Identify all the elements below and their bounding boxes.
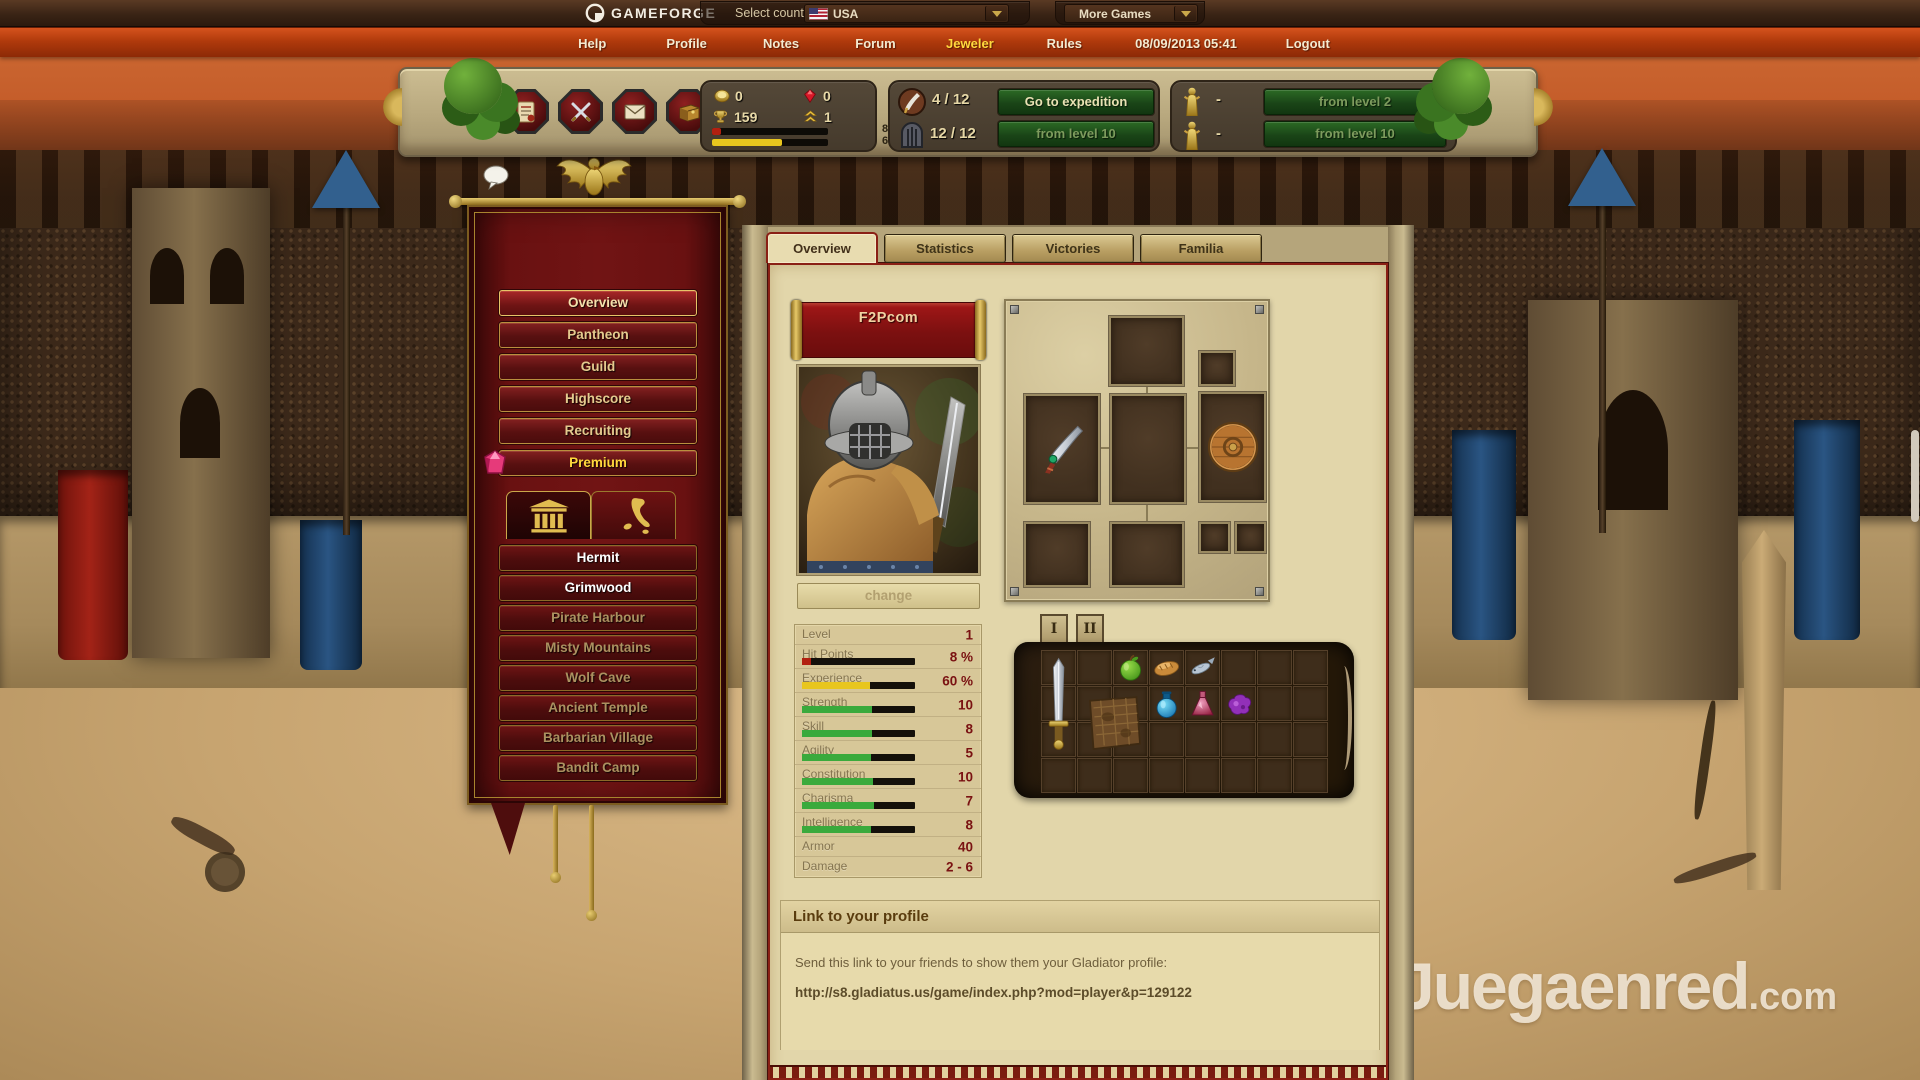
datetime-display: 08/09/2013 05:41 — [1112, 36, 1261, 51]
stat-row-intelligence: Intelligence8 — [795, 813, 981, 837]
nav-help[interactable]: Help — [545, 36, 639, 51]
expedition-points: 4 / 12 — [932, 91, 970, 108]
stat-bar — [802, 754, 915, 761]
nav-logout[interactable]: Logout — [1261, 36, 1355, 51]
country-select[interactable]: USA — [804, 4, 1009, 23]
gold-counter: 0 — [714, 88, 743, 104]
gold-icon — [714, 88, 730, 104]
inventory-cell[interactable] — [1149, 722, 1184, 757]
gladiator-portrait — [797, 365, 980, 575]
location-hermit[interactable]: Hermit — [499, 545, 697, 571]
city-tab[interactable] — [506, 491, 591, 539]
profile-panel: F2Pcom — [768, 263, 1388, 1080]
expedition-dagger-icon — [897, 87, 927, 117]
location-barbarian-village[interactable]: Barbarian Village — [499, 725, 697, 751]
stat-value: 5 — [965, 745, 973, 760]
stat-value: 1 — [965, 627, 973, 642]
inventory-cell[interactable] — [1221, 722, 1256, 757]
scrollbar-thumb[interactable] — [1911, 430, 1919, 522]
premium-gem-icon — [478, 447, 512, 479]
stat-value: 8 — [965, 817, 973, 832]
character-nameplate: F2Pcom — [797, 302, 980, 358]
meander-border — [770, 1065, 1386, 1078]
ruby-counter: 0 — [802, 88, 831, 104]
stat-bar — [802, 826, 915, 833]
resource-header: 0 0 159 1 8% 60% 4 / 12 Go to expedition… — [398, 67, 1538, 157]
inventory-cell[interactable] — [1257, 758, 1292, 793]
blue-drape — [300, 520, 362, 670]
gameforge-topbar: GAMEFORGE Select country: USA More Games — [0, 0, 1920, 27]
inventory-item-blue-potion[interactable] — [1150, 687, 1184, 721]
ruby-icon — [802, 88, 818, 104]
resources-panel: 0 0 159 1 — [700, 80, 877, 152]
amulet-slot[interactable] — [1199, 351, 1235, 386]
banner-pole — [1599, 203, 1606, 533]
combat-button[interactable] — [558, 89, 603, 134]
profile-tabs: OverviewStatisticsVictoriesFamilia — [766, 232, 1268, 263]
dungeon-gate-icon — [897, 120, 927, 150]
inventory-cell[interactable] — [1077, 650, 1112, 685]
stats-table: Level1Hit Points8 %Experience60 %Strengt… — [794, 624, 982, 878]
sidebar-item-pantheon[interactable]: Pantheon — [499, 322, 697, 348]
gloves-slot[interactable] — [1024, 522, 1090, 587]
inventory-tab-1[interactable]: I — [1040, 614, 1068, 644]
wing-ornament-icon — [1534, 85, 1556, 129]
nav-notes[interactable]: Notes — [734, 36, 828, 51]
main-navbar: HelpProfileNotesForumJewelerRules08/09/2… — [0, 27, 1920, 57]
equipment-panel — [1004, 299, 1270, 602]
sidebar-item-recruiting[interactable]: Recruiting — [499, 418, 697, 444]
inventory-item-apple[interactable] — [1114, 651, 1148, 685]
profile-link-header: Link to your profile — [781, 901, 1379, 933]
bag-rope — [1336, 666, 1352, 770]
trophy-icon — [712, 108, 729, 125]
action-icons-row — [504, 89, 711, 134]
wing-ornament-icon — [380, 85, 402, 129]
hitpoints-bar — [712, 128, 828, 135]
sidebar-item-highscore[interactable]: Highscore — [499, 386, 697, 412]
ring-slot-1[interactable] — [1199, 522, 1230, 553]
location-ancient-temple[interactable]: Ancient Temple — [499, 695, 697, 721]
weapon-slot[interactable] — [1024, 394, 1100, 504]
profile-link-url[interactable]: http://s8.gladiatus.us/game/index.php?mo… — [795, 985, 1192, 1000]
chest-slot[interactable] — [1110, 394, 1186, 504]
stat-row-skill: Skill8 — [795, 717, 981, 741]
location-misty-mountains[interactable]: Misty Mountains — [499, 635, 697, 661]
more-games-select[interactable]: More Games — [1064, 4, 1198, 23]
inventory-grid — [1041, 650, 1331, 796]
inventory-cell[interactable] — [1077, 758, 1112, 793]
helmet-slot[interactable] — [1109, 316, 1184, 386]
arena-statue-icon — [1180, 120, 1204, 150]
gameforge-logo[interactable]: GAMEFORGE — [585, 3, 716, 23]
arena-statue-icon — [1180, 86, 1204, 116]
dungeon-points: 12 / 12 — [930, 125, 976, 142]
stat-label: Damage — [802, 859, 847, 873]
profile-link-body: Send this link to your friends to show t… — [781, 933, 1379, 1050]
dungeon-from-level-button[interactable]: from level 10 — [998, 121, 1154, 147]
ring-slot-2[interactable] — [1235, 522, 1266, 553]
go-to-expedition-button[interactable]: Go to expedition — [998, 89, 1154, 115]
obelisk — [1742, 530, 1786, 890]
left-tower — [132, 188, 270, 658]
stat-row-armor: Armor40 — [795, 837, 981, 857]
tab-victories[interactable]: Victories — [1012, 234, 1134, 263]
sidebar-item-premium[interactable]: Premium — [499, 450, 697, 476]
sidebar-menu: OverviewPantheonGuildHighscoreRecruiting… — [499, 290, 697, 482]
tab-familia[interactable]: Familia — [1140, 234, 1262, 263]
ruby-value: 0 — [823, 88, 831, 104]
stat-row-damage: Damage2 - 6 — [795, 857, 981, 877]
banner-rod — [455, 198, 740, 205]
stat-row-experience: Experience60 % — [795, 669, 981, 693]
nav-row: HelpProfileNotesForumJewelerRules08/09/2… — [545, 28, 1355, 58]
inventory-cell[interactable] — [1257, 686, 1292, 721]
change-portrait-button[interactable]: change — [797, 583, 980, 609]
inventory-tab-2[interactable]: II — [1076, 614, 1104, 644]
stat-value: 8 % — [950, 649, 973, 664]
more-games-dropdown-arrow-icon[interactable] — [1174, 6, 1196, 21]
stat-value: 10 — [958, 769, 973, 784]
stat-bar — [802, 802, 915, 809]
inventory-cell[interactable] — [1113, 758, 1148, 793]
expedition-panel: 4 / 12 Go to expedition 12 / 12 from lev… — [888, 80, 1160, 152]
location-pirate-harbour[interactable]: Pirate Harbour — [499, 605, 697, 631]
profile-link-section: Link to your profile Send this link to y… — [780, 900, 1380, 1050]
curved-dagger-icon[interactable] — [1035, 422, 1089, 476]
usa-flag-icon — [809, 8, 828, 20]
tower-cone-roof — [312, 150, 380, 208]
blue-drape — [1452, 430, 1516, 640]
temple-icon — [527, 497, 571, 535]
right-tower — [1528, 300, 1738, 700]
location-grimwood[interactable]: Grimwood — [499, 575, 697, 601]
arena-slot2-value: - — [1216, 125, 1221, 142]
nav-forum[interactable]: Forum — [828, 36, 922, 51]
location-bandit-camp[interactable]: Bandit Camp — [499, 755, 697, 781]
inventory-item-chain-armor[interactable] — [1078, 687, 1148, 757]
inventory-cell[interactable] — [1221, 758, 1256, 793]
trophy-counter: 159 — [712, 108, 757, 125]
messages-icon — [622, 99, 648, 125]
inventory-cell[interactable] — [1185, 722, 1220, 757]
stat-bar — [802, 730, 915, 737]
inventory-cell[interactable] — [1041, 758, 1076, 793]
inventory-item-red-potion[interactable] — [1186, 687, 1220, 721]
sidebar-item-guild[interactable]: Guild — [499, 354, 697, 380]
arena-from-level-10-button[interactable]: from level 10 — [1264, 121, 1446, 147]
location-tabs — [506, 491, 676, 539]
map-tab[interactable] — [591, 491, 676, 539]
tower-cone-roof — [1568, 148, 1636, 206]
blue-drape — [1794, 420, 1860, 640]
hitpoints-bar-fill — [712, 128, 721, 135]
nav-profile[interactable]: Profile — [639, 36, 733, 51]
profile-link-description: Send this link to your friends to show t… — [795, 955, 1167, 970]
report-icon — [514, 99, 540, 125]
inventory-cell[interactable] — [1293, 686, 1328, 721]
country-module: Select country: USA — [700, 1, 1030, 25]
stat-value: 7 — [965, 793, 973, 808]
gameforge-logo-icon — [585, 3, 605, 23]
gold-value: 0 — [735, 88, 743, 104]
more-games-module: More Games — [1055, 1, 1205, 25]
stat-bar — [802, 706, 915, 713]
shield-slot[interactable] — [1199, 392, 1266, 502]
arena-panel: - from level 2 - from level 10 — [1170, 80, 1457, 152]
inventory-bag — [1014, 642, 1354, 798]
stat-value: 2 - 6 — [946, 860, 973, 875]
inventory-item-purple-item[interactable] — [1222, 687, 1256, 721]
stat-value: 8 — [965, 721, 973, 736]
banner-pole — [343, 205, 350, 535]
fallen-shield — [205, 852, 245, 892]
rank-value: 1 — [824, 109, 832, 125]
rank-chevrons-icon — [802, 108, 819, 125]
experience-bar-fill — [712, 139, 782, 146]
location-wolf-cave[interactable]: Wolf Cave — [499, 665, 697, 691]
character-name: F2Pcom — [798, 310, 979, 326]
tab-statistics[interactable]: Statistics — [884, 234, 1006, 263]
ivy-plant — [444, 58, 502, 114]
experience-bar — [712, 139, 828, 146]
ivy-plant — [1432, 58, 1490, 114]
stat-row-constitution: Constitution10 — [795, 765, 981, 789]
stat-label: Level — [802, 627, 831, 641]
map-icon — [613, 495, 655, 537]
stat-row-agility: Agility5 — [795, 741, 981, 765]
inventory-cell[interactable] — [1221, 650, 1256, 685]
inventory-item-bread[interactable] — [1150, 651, 1184, 685]
inventory-item-sword[interactable] — [1042, 651, 1076, 757]
packages-icon — [676, 99, 702, 125]
stat-row-hit-points: Hit Points8 % — [795, 645, 981, 669]
inventory-cell[interactable] — [1293, 650, 1328, 685]
inventory-cell[interactable] — [1293, 758, 1328, 793]
rank-counter: 1 — [802, 108, 832, 125]
inventory-cell[interactable] — [1185, 758, 1220, 793]
stat-label: Armor — [802, 839, 835, 853]
boots-slot[interactable] — [1110, 522, 1184, 587]
stat-value: 10 — [958, 697, 973, 712]
stat-value: 40 — [958, 839, 973, 854]
country-dropdown-arrow-icon[interactable] — [985, 6, 1007, 21]
inventory-cell[interactable] — [1293, 722, 1328, 757]
red-drape — [58, 470, 128, 660]
profile-link-title: Link to your profile — [781, 901, 1379, 925]
stat-row-strength: Strength10 — [795, 693, 981, 717]
inventory-cell[interactable] — [1257, 650, 1292, 685]
stat-row-level: Level1 — [795, 625, 981, 645]
arena-from-level-2-button[interactable]: from level 2 — [1264, 89, 1446, 115]
country-value: USA — [833, 7, 858, 21]
arena-slot1-value: - — [1216, 91, 1221, 108]
banner-body: OverviewPantheonGuildHighscoreRecruiting… — [467, 205, 728, 805]
nav-jeweler[interactable]: Jeweler — [923, 36, 1017, 51]
more-games-label: More Games — [1079, 7, 1151, 21]
stat-bar — [802, 658, 915, 665]
location-list: HermitGrimwoodPirate HarbourMisty Mounta… — [499, 545, 697, 785]
messages-button[interactable] — [612, 89, 657, 134]
sidebar-item-overview[interactable]: Overview — [499, 290, 697, 316]
inventory-cell[interactable] — [1257, 722, 1292, 757]
stat-bar — [802, 682, 915, 689]
inventory-item-fish[interactable] — [1186, 651, 1220, 685]
report-button[interactable] — [504, 89, 549, 134]
stat-row-charisma: Charisma7 — [795, 789, 981, 813]
round-shield-icon[interactable] — [1206, 420, 1260, 474]
sidebar-banner: OverviewPantheonGuildHighscoreRecruiting… — [467, 152, 728, 882]
banner-cord — [589, 805, 594, 913]
combat-icon — [568, 99, 594, 125]
tab-overview[interactable]: Overview — [766, 232, 878, 263]
trophy-value: 159 — [734, 109, 757, 125]
stat-bar — [802, 778, 915, 785]
banner-tail — [491, 803, 525, 855]
stat-value: 60 % — [942, 673, 973, 688]
banner-cord — [553, 805, 558, 875]
inventory-cell[interactable] — [1149, 758, 1184, 793]
nav-rules[interactable]: Rules — [1017, 36, 1111, 51]
chat-bubble-icon[interactable] — [481, 164, 511, 190]
